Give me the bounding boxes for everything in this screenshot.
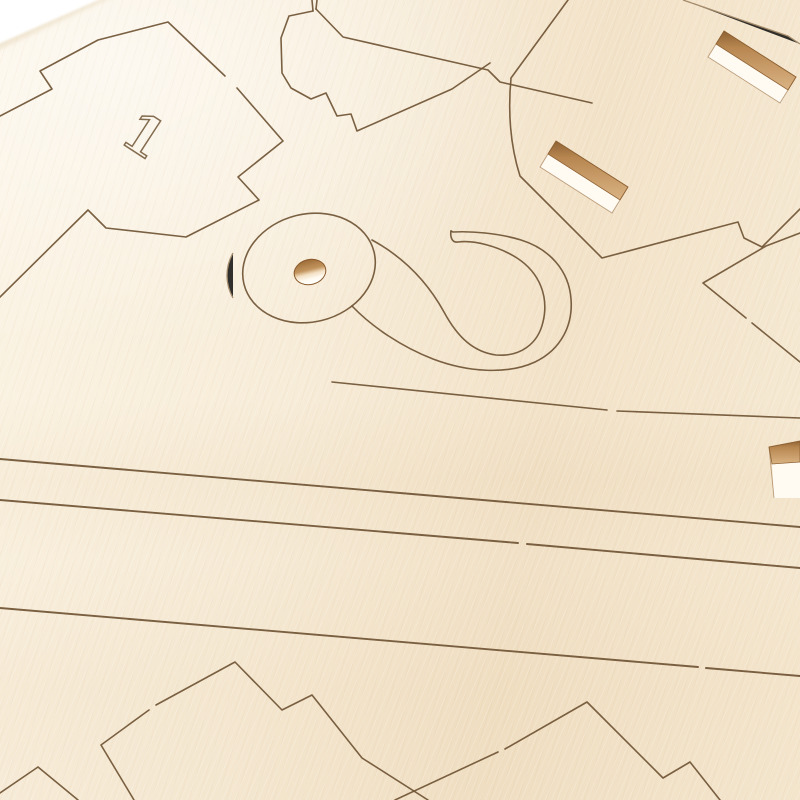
panel-outline-cut	[510, 0, 800, 258]
part-right-zigzag-cut	[703, 233, 800, 362]
strip-cut-2	[0, 459, 800, 527]
through-slot-upper	[708, 31, 796, 103]
strip-cut-4	[0, 608, 800, 676]
slot-backlight	[772, 462, 800, 498]
drilled-hole	[291, 256, 328, 288]
bottom-centre-zigzag-cut	[101, 662, 428, 800]
panel-top-edge-cut	[683, 0, 800, 44]
adjacent-part-arc-cut	[227, 253, 233, 298]
bottom-left-peak-cut	[0, 767, 78, 800]
strip-cut-1	[332, 382, 800, 418]
bottom-right-zigzag-cut	[395, 702, 720, 800]
engraved-numeral: 1	[111, 98, 177, 172]
photo-laser-cut-plywood-sheet: 1	[0, 0, 800, 800]
bottom-part-outlines	[0, 662, 720, 800]
hole-opening	[291, 256, 328, 288]
strip-cut-3	[0, 500, 800, 568]
cut-pattern-overlay: 1	[0, 0, 800, 800]
part-top-centre-outline	[281, 0, 592, 131]
through-slot-right-edge	[769, 441, 800, 498]
house-cut-line	[281, 11, 490, 131]
part-cross-outline: 1	[0, 22, 283, 297]
through-slot-lower	[540, 141, 628, 213]
part-slotted-panel	[510, 0, 800, 258]
part-hook	[227, 199, 571, 370]
hook-outer-cut	[352, 231, 571, 370]
strip-cut-lines	[0, 382, 800, 676]
background-beyond-sheet-edge	[0, 0, 118, 52]
hook-inner-cut	[372, 231, 545, 355]
